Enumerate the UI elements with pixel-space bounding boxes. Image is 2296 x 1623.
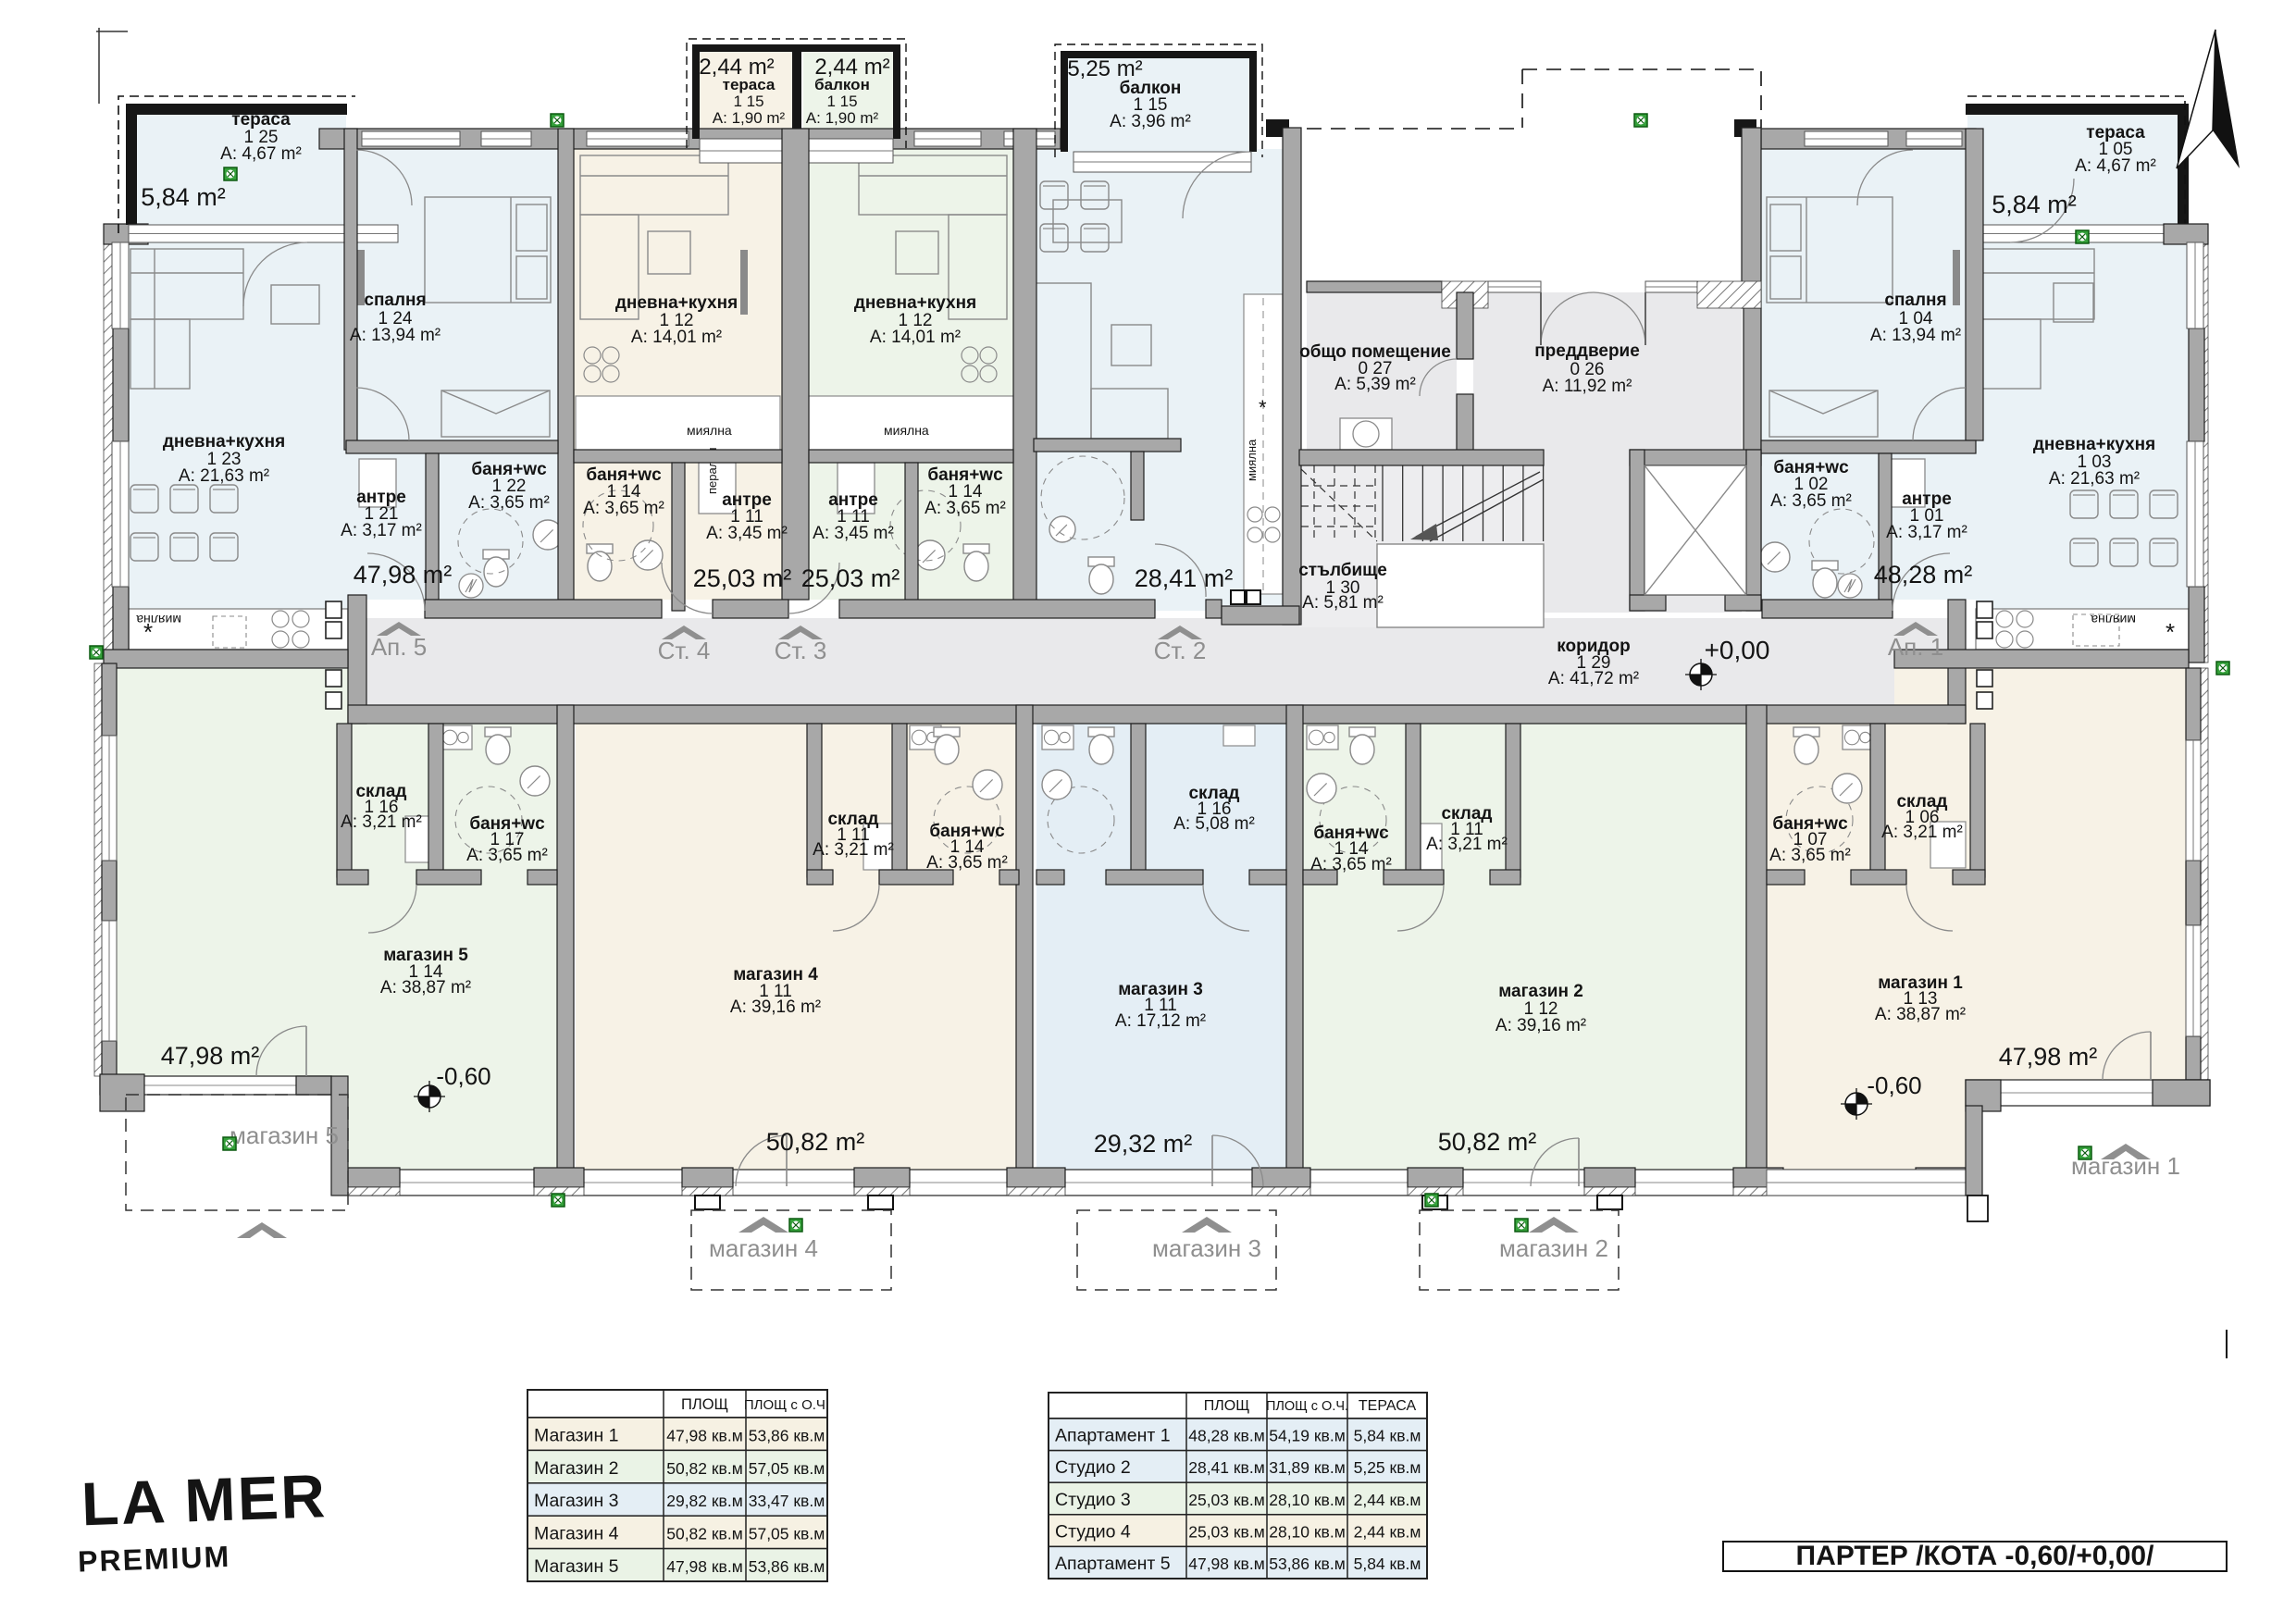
svg-text:магазин 3: магазин 3 [1152,1234,1261,1262]
svg-text:57,05 кв.м: 57,05 кв.м [749,1525,825,1543]
svg-text:Ст. 2: Ст. 2 [1154,637,1207,664]
svg-text:дневна+кухня: дневна+кухня [163,432,285,452]
svg-text:A: 21,63 m²: A: 21,63 m² [179,466,269,486]
svg-text:A: 3,45 m²: A: 3,45 m² [706,524,788,543]
svg-text:29,82 кв.м: 29,82 кв.м [666,1492,743,1510]
svg-text:Магазин 3: Магазин 3 [534,1491,618,1511]
svg-text:миялна: миялна [884,423,929,438]
svg-text:балкон: балкон [814,76,870,93]
svg-text:47,98 m²: 47,98 m² [161,1042,260,1070]
svg-text:A: 3,17 m²: A: 3,17 m² [341,521,422,540]
svg-text:28,10 кв.м: 28,10 кв.м [1269,1491,1346,1509]
svg-text:A: 3,65 m²: A: 3,65 m² [1310,855,1392,874]
svg-text:миялна: миялна [1245,439,1259,481]
svg-text:A: 5,08 m²: A: 5,08 m² [1173,814,1255,834]
svg-text:A: 13,94 m²: A: 13,94 m² [350,326,441,345]
svg-text:Ап. 1: Ап. 1 [1888,633,1943,661]
svg-text:LA MER: LA MER [81,1461,329,1538]
svg-text:стълбище: стълбище [1298,561,1387,580]
svg-text:5,25 m²: 5,25 m² [1067,56,1142,81]
svg-text:50,82 m²: 50,82 m² [766,1128,865,1156]
svg-text:ТЕРАСА: ТЕРАСА [1359,1398,1417,1414]
svg-text:A: 3,17 m²: A: 3,17 m² [1886,523,1967,542]
svg-text:Магазин 1: Магазин 1 [534,1425,618,1445]
svg-text:25,03 кв.м: 25,03 кв.м [1188,1522,1265,1541]
svg-text:57,05 кв.м: 57,05 кв.м [749,1459,825,1478]
svg-text:спалня: спалня [1884,291,1946,310]
svg-text:47,98 кв.м: 47,98 кв.м [1188,1555,1265,1573]
svg-text:спалня: спалня [364,291,426,310]
svg-text:A: 17,12 m²: A: 17,12 m² [1115,1011,1206,1031]
svg-text:53,86 кв.м: 53,86 кв.м [1269,1555,1346,1573]
svg-text:A: 3,65 m²: A: 3,65 m² [468,493,550,513]
svg-text:Ст. 3: Ст. 3 [775,637,827,664]
svg-text:Ст. 4: Ст. 4 [658,637,711,664]
svg-text:-0,60: -0,60 [436,1062,490,1090]
svg-text:A: 38,87 m²: A: 38,87 m² [1875,1005,1966,1024]
svg-text:магазин 4: магазин 4 [709,1234,818,1262]
svg-text:53,86 кв.м: 53,86 кв.м [749,1557,825,1576]
svg-text:47,98 кв.м: 47,98 кв.м [666,1426,743,1444]
svg-text:ПАРТЕР /КОТА -0,60/+0,00/: ПАРТЕР /КОТА -0,60/+0,00/ [1796,1541,2155,1571]
svg-text:ПЛОЩ: ПЛОЩ [1204,1398,1249,1414]
svg-text:Магазин 4: Магазин 4 [534,1524,619,1544]
svg-text:A: 5,39 m²: A: 5,39 m² [1334,375,1416,394]
svg-text:53,86 кв.м: 53,86 кв.м [749,1426,825,1444]
svg-text:дневна+кухня: дневна+кухня [615,293,738,313]
svg-text:2,44 кв.м: 2,44 кв.м [1354,1522,1421,1541]
svg-text:тераса: тераса [723,76,776,93]
svg-text:A: 3,21 m²: A: 3,21 m² [341,812,422,832]
svg-text:A: 3,21 m²: A: 3,21 m² [1881,823,1963,842]
svg-text:47,98 m²: 47,98 m² [1999,1043,2098,1071]
svg-text:A: 39,16 m²: A: 39,16 m² [730,997,821,1017]
svg-text:Ап. 5: Ап. 5 [371,633,427,661]
svg-text:50,82 кв.м: 50,82 кв.м [666,1459,743,1478]
svg-text:A: 4,67 m²: A: 4,67 m² [220,144,302,164]
svg-text:28,41 кв.м: 28,41 кв.м [1188,1458,1265,1477]
svg-text:A: 41,72 m²: A: 41,72 m² [1548,669,1639,688]
svg-text:5,84 кв.м: 5,84 кв.м [1354,1427,1421,1445]
svg-text:A: 21,63 m²: A: 21,63 m² [2049,469,2140,489]
svg-text:28,41 m²: 28,41 m² [1135,564,1234,592]
svg-text:48,28 кв.м: 48,28 кв.м [1188,1427,1265,1445]
svg-text:54,19 кв.м: 54,19 кв.м [1269,1427,1346,1445]
svg-text:31,89 кв.м: 31,89 кв.м [1269,1458,1346,1477]
svg-text:25,03 m²: 25,03 m² [693,564,792,592]
svg-text:48,28 m²: 48,28 m² [1874,561,1973,588]
svg-text:Апартамент 5: Апартамент 5 [1055,1554,1171,1574]
svg-text:50,82 m²: 50,82 m² [1438,1128,1537,1156]
svg-text:25,03 кв.м: 25,03 кв.м [1188,1491,1265,1509]
svg-text:*: * [143,618,153,646]
svg-text:миялна: миялна [2091,613,2136,627]
svg-text:5,84 кв.м: 5,84 кв.м [1354,1555,1421,1573]
svg-text:5,84 m²: 5,84 m² [141,183,226,211]
svg-text:A: 3,21 m²: A: 3,21 m² [1426,835,1508,854]
svg-text:A: 3,65 m²: A: 3,65 m² [1769,846,1851,865]
svg-text:Студио 3: Студио 3 [1055,1490,1131,1510]
svg-text:1 15: 1 15 [733,93,763,110]
svg-text:магазин 2: магазин 2 [1498,982,1583,1001]
svg-text:дневна+кухня: дневна+кухня [2033,435,2155,454]
svg-text:дневна+кухня: дневна+кухня [854,293,976,313]
svg-text:PREMIUM: PREMIUM [78,1540,231,1579]
svg-text:ПЛОЩ с О.Ч.: ПЛОЩ с О.Ч. [744,1397,829,1413]
svg-text:A: 14,01 m²: A: 14,01 m² [631,328,722,347]
svg-text:тераса: тераса [231,110,291,130]
svg-text:Апартамент 1: Апартамент 1 [1055,1426,1171,1446]
svg-text:A: 1,90 m²: A: 1,90 m² [713,109,786,127]
svg-text:5,84 m²: 5,84 m² [1992,191,2077,218]
svg-text:A: 3,65 m²: A: 3,65 m² [925,499,1006,518]
svg-text:+0,00: +0,00 [1705,636,1770,664]
svg-text:A: 39,16 m²: A: 39,16 m² [1496,1016,1586,1035]
svg-text:A: 5,81 m²: A: 5,81 m² [1302,593,1384,613]
svg-text:A: 3,96 m²: A: 3,96 m² [1110,112,1191,131]
svg-text:-0,60: -0,60 [1867,1072,1921,1099]
svg-text:ПЛОЩ: ПЛОЩ [681,1396,728,1413]
svg-text:5,25 кв.м: 5,25 кв.м [1354,1458,1421,1477]
svg-text:A: 3,65 m²: A: 3,65 m² [583,499,664,518]
svg-text:28,10 кв.м: 28,10 кв.м [1269,1522,1346,1541]
svg-text:магазин 5: магазин 5 [230,1121,339,1149]
svg-text:Магазин 5: Магазин 5 [534,1556,619,1577]
svg-text:Студио 4: Студио 4 [1055,1521,1131,1542]
svg-text:*: * [1259,396,1267,419]
svg-text:A: 13,94 m²: A: 13,94 m² [1870,326,1961,345]
svg-text:A: 14,01 m²: A: 14,01 m² [870,328,961,347]
svg-text:47,98 m²: 47,98 m² [354,561,453,588]
svg-text:29,32 m²: 29,32 m² [1094,1130,1193,1158]
svg-text:25,03 m²: 25,03 m² [801,564,900,592]
svg-text:Магазин 2: Магазин 2 [534,1458,618,1479]
svg-text:A: 3,65 m²: A: 3,65 m² [466,846,548,865]
svg-text:Студио 2: Студио 2 [1055,1457,1131,1478]
svg-text:A: 38,87 m²: A: 38,87 m² [380,978,471,997]
svg-text:2,44 кв.м: 2,44 кв.м [1354,1491,1421,1509]
svg-text:A: 1,90 m²: A: 1,90 m² [806,109,879,127]
svg-text:A: 3,65 m²: A: 3,65 m² [1770,491,1852,511]
svg-text:миялна: миялна [687,423,732,438]
svg-text:ПЛОЩ с О.Ч.: ПЛОЩ с О.Ч. [1266,1399,1348,1414]
svg-text:A: 3,21 m²: A: 3,21 m² [813,840,894,860]
svg-text:1 15: 1 15 [826,93,857,110]
svg-text:A: 4,67 m²: A: 4,67 m² [2075,156,2156,176]
svg-text:A: 3,65 m²: A: 3,65 m² [926,853,1008,873]
svg-text:*: * [2166,618,2175,646]
svg-text:преддверие: преддверие [1534,341,1640,361]
svg-text:магазин 2: магазин 2 [1499,1234,1608,1262]
svg-text:47,98 кв.м: 47,98 кв.м [666,1557,743,1576]
svg-text:A: 3,45 m²: A: 3,45 m² [813,524,894,543]
svg-text:A: 11,92 m²: A: 11,92 m² [1543,377,1632,396]
svg-text:50,82 кв.м: 50,82 кв.м [666,1525,743,1543]
svg-text:33,47 кв.м: 33,47 кв.м [749,1492,825,1510]
